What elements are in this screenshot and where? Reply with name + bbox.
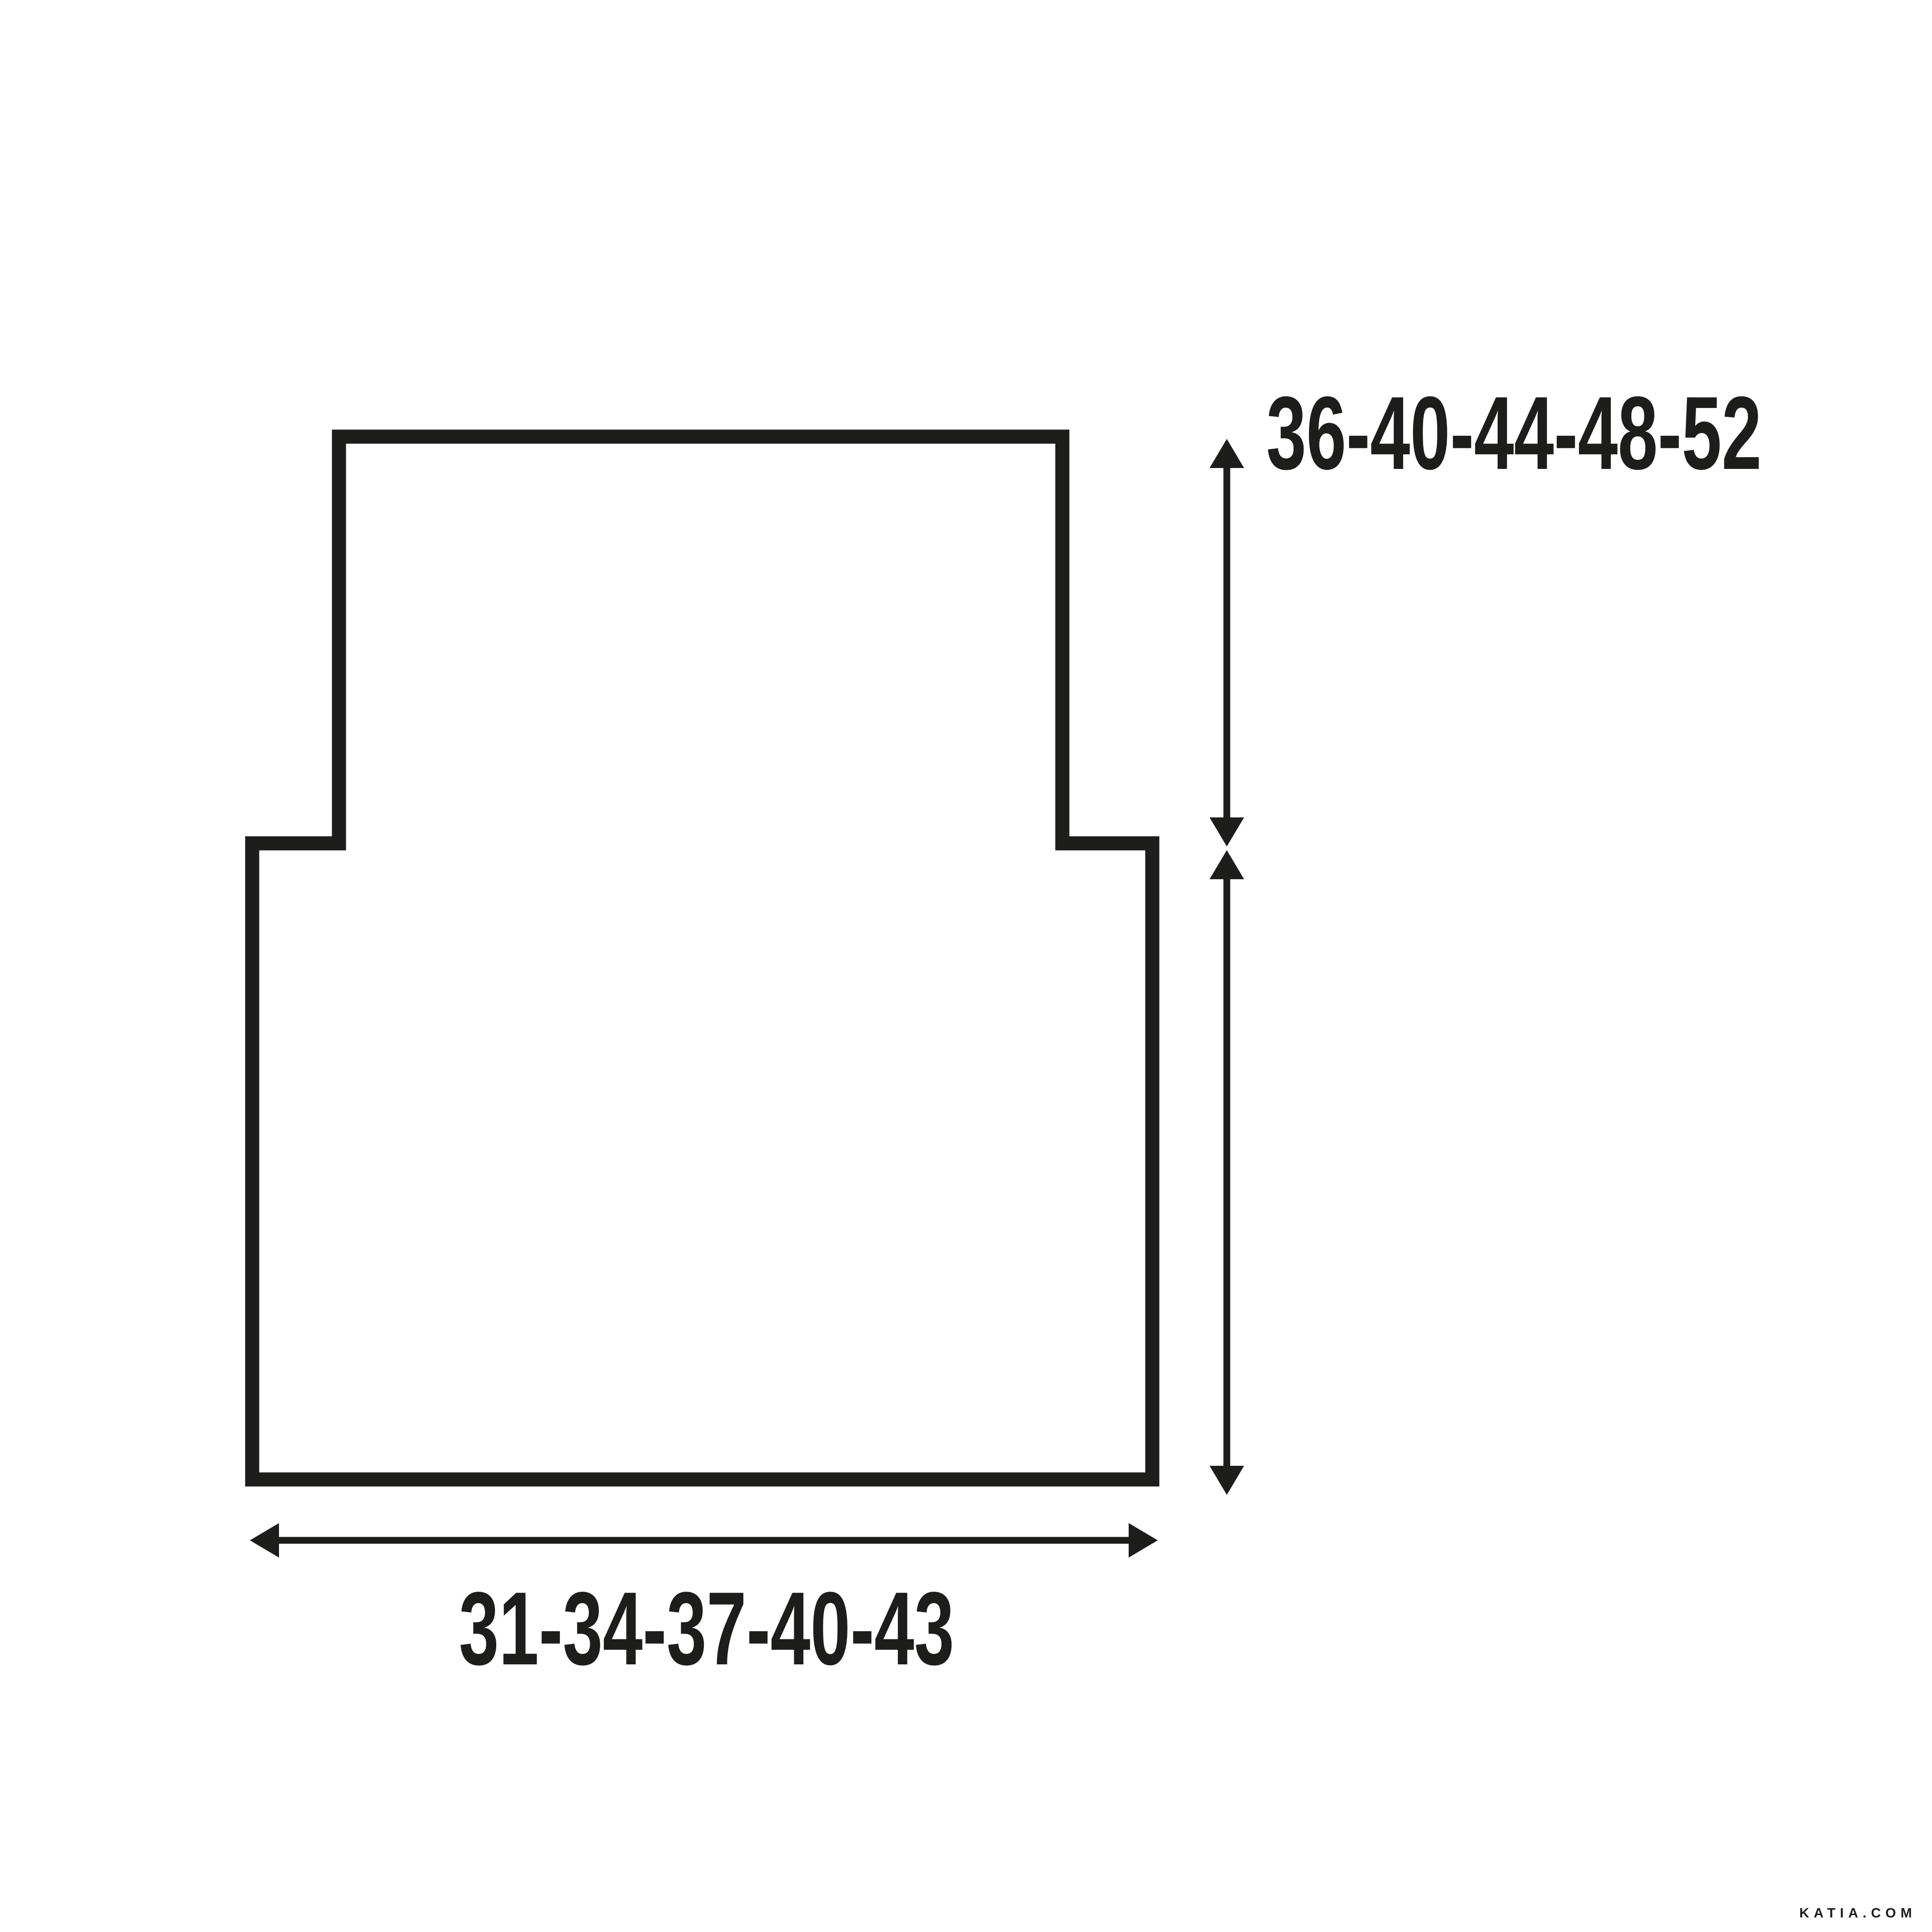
arrowhead-left-icon [250, 1523, 279, 1558]
horizontal-measurement-label: 31-34-37-40-43 [459, 1570, 954, 1687]
arrowhead-right-icon [1129, 1523, 1158, 1558]
horizontal-measure-arrow [250, 1523, 1158, 1558]
arrowhead-up-icon [1210, 850, 1244, 879]
vertical-measurement-label: 36-40-44-48-52 [1266, 375, 1762, 491]
garment-piece-outline [252, 437, 1152, 1479]
arrowhead-down-icon [1210, 817, 1244, 846]
watermark: KATIA.COM [1799, 1906, 1917, 1921]
vertical-measure-arrow-lower [1210, 850, 1244, 1495]
garment-schematic: 36-40-44-48-52 31-34-37-40-43 KATIA.COM [0, 0, 1932, 1932]
vertical-measure-arrow-upper [1210, 439, 1244, 846]
arrowhead-up-icon [1210, 439, 1244, 468]
pattern-schematic-canvas: 36-40-44-48-52 31-34-37-40-43 KATIA.COM [0, 0, 1932, 1932]
arrowhead-down-icon [1210, 1466, 1244, 1495]
